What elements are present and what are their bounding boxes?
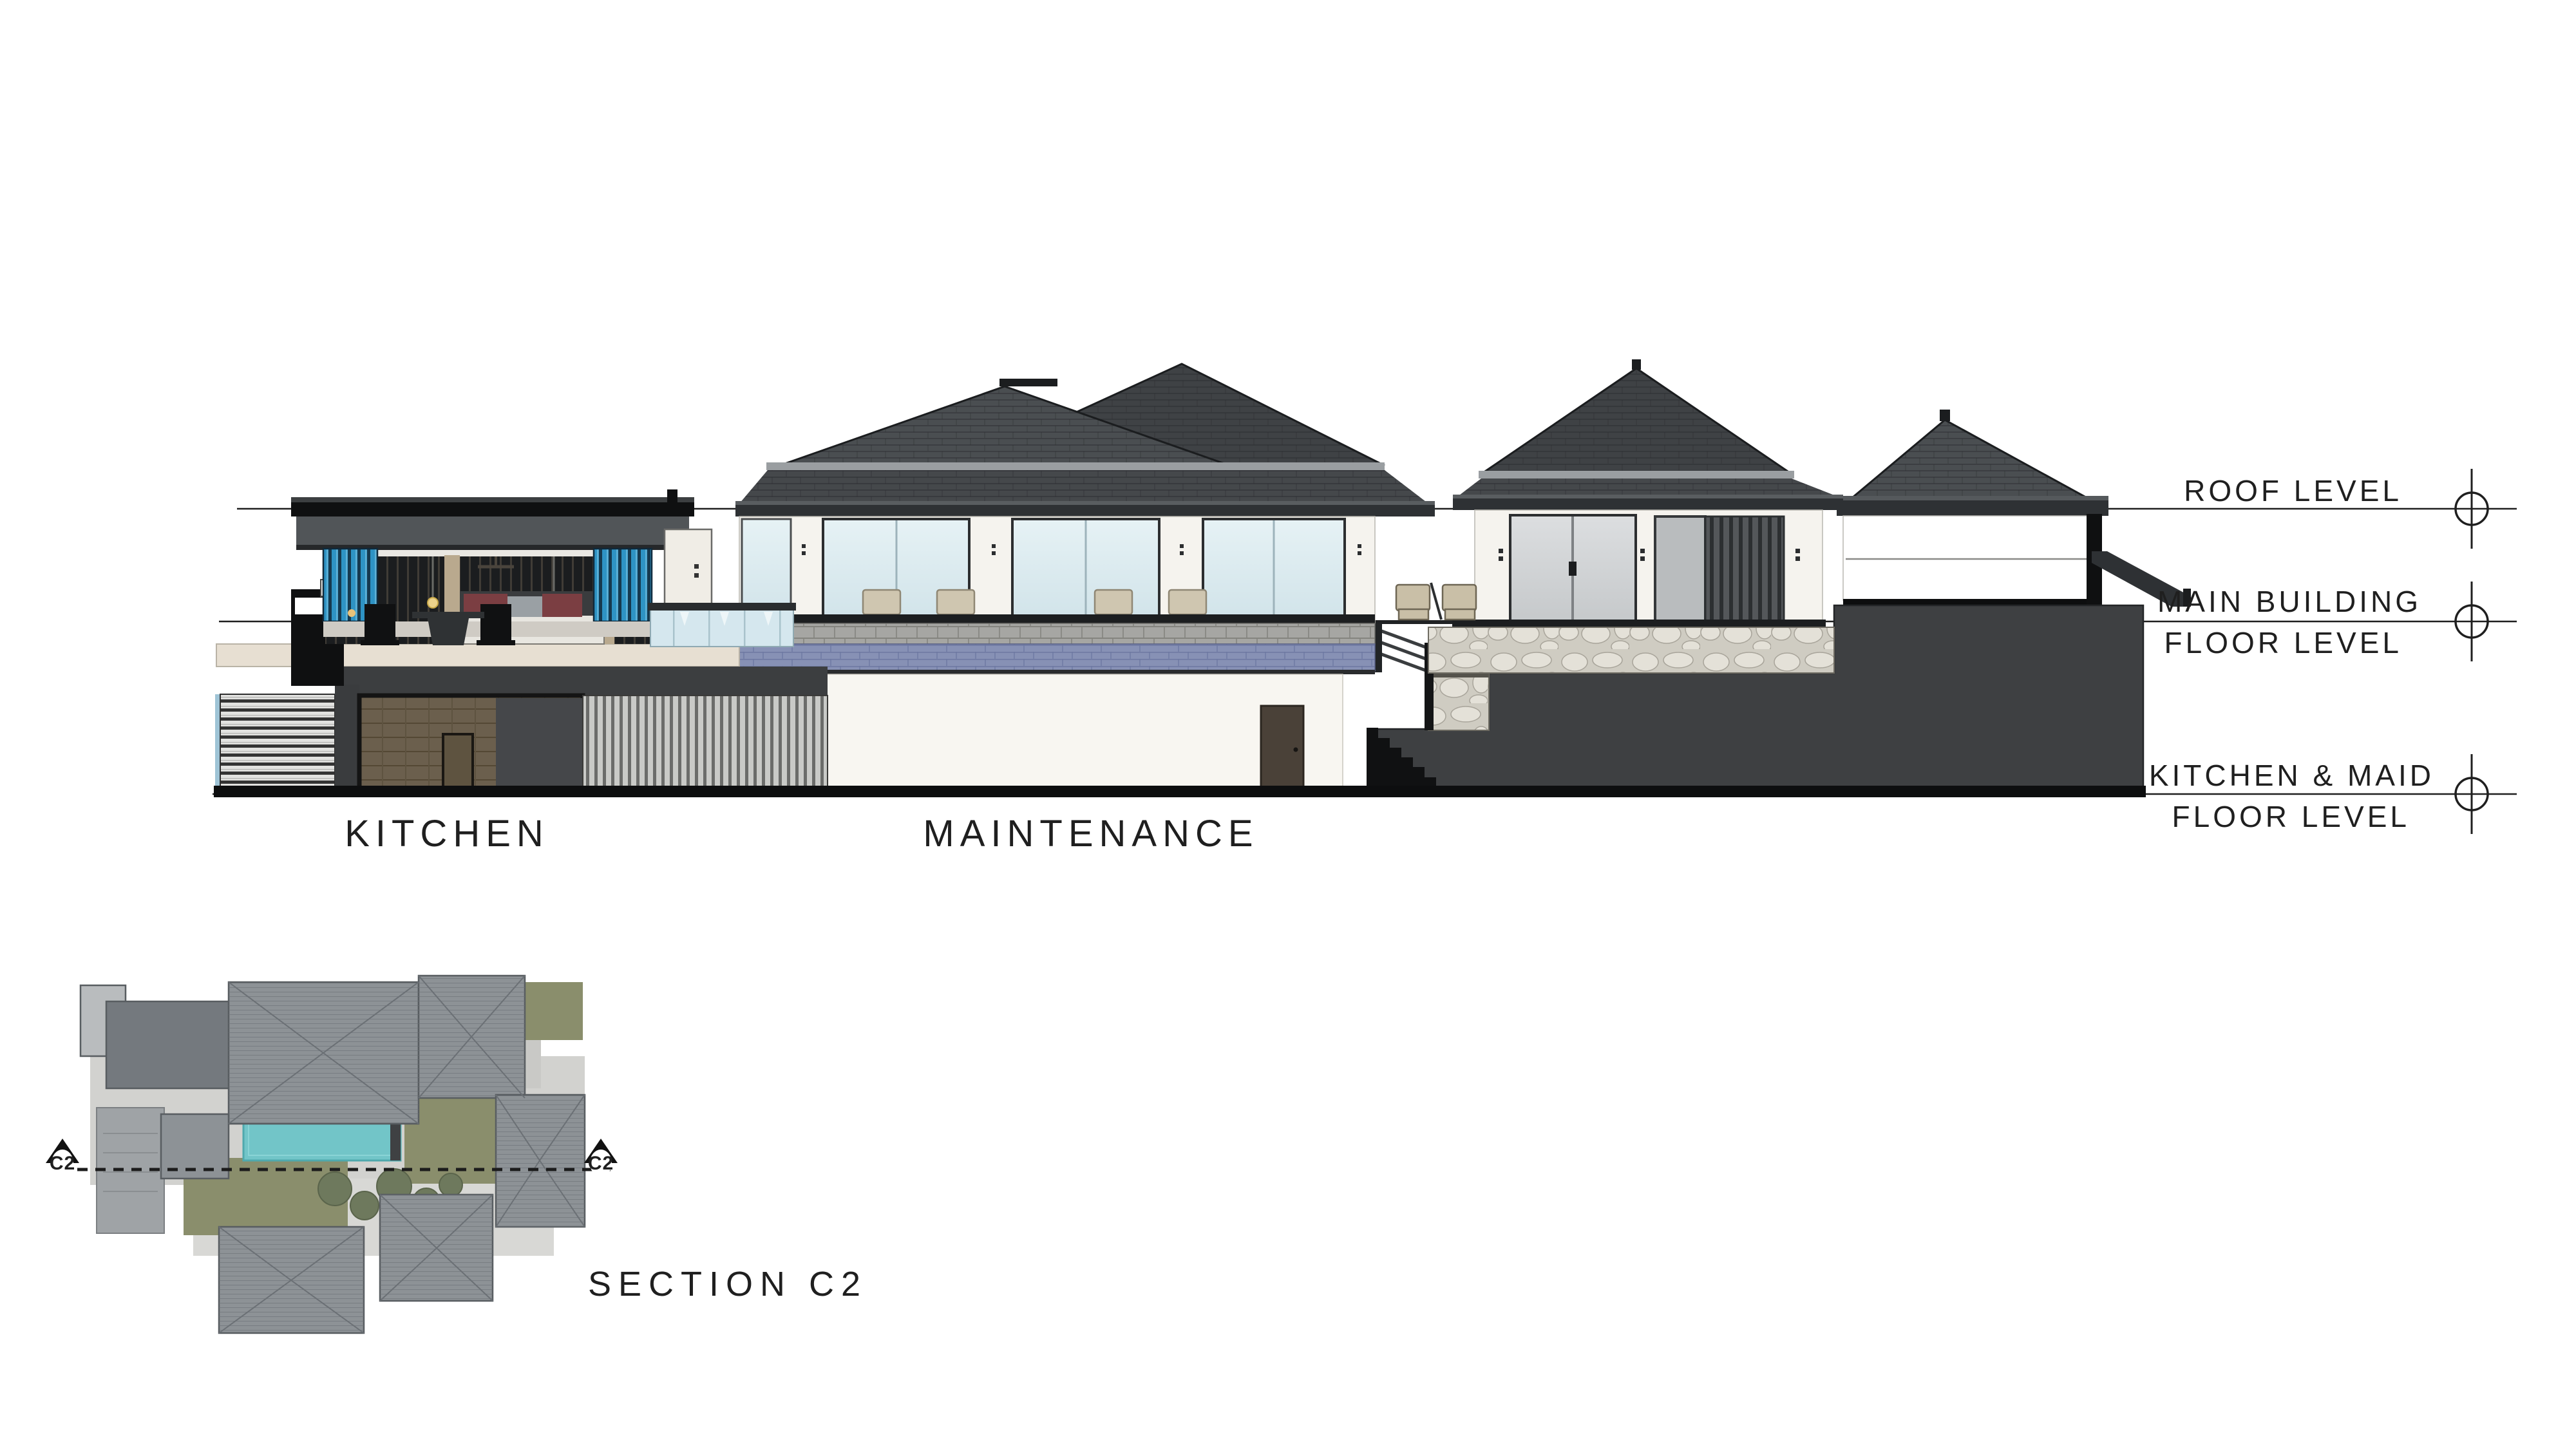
room-labels: KITCHEN MAINTENANCE — [345, 813, 1258, 855]
stair-railing — [1378, 630, 1431, 672]
svg-text:C2: C2 — [588, 1153, 614, 1174]
blue-louver-right — [594, 549, 652, 621]
main-level-label-1: MAIN BUILDING — [2157, 585, 2421, 618]
terrace-balustrade — [648, 603, 796, 647]
kitchen-level-label-1: KITCHEN & MAID — [2149, 759, 2434, 792]
stone-pillar — [1428, 671, 1489, 730]
section-c2-sheet: ROOF LEVEL MAIN BUILDING FLOOR LEVEL KIT… — [0, 0, 2576, 1449]
drawing-canvas: ROOF LEVEL MAIN BUILDING FLOOR LEVEL KIT… — [0, 0, 2576, 1449]
kitchen-level-label-2: FLOOR LEVEL — [2172, 800, 2410, 833]
middle-building — [735, 364, 1435, 789]
maintenance-label: MAINTENANCE — [923, 813, 1258, 855]
section-title: SECTION C2 — [588, 1265, 867, 1303]
louver-fence — [220, 694, 335, 790]
level-labels: ROOF LEVEL MAIN BUILDING FLOOR LEVEL KIT… — [2149, 474, 2434, 833]
ground-base-line — [214, 786, 2146, 797]
site-plan: C2 C2 — [46, 976, 618, 1333]
kitchen-door — [443, 734, 473, 790]
level-markers — [2456, 469, 2488, 834]
stone-base — [1428, 627, 1834, 673]
svg-text:C2: C2 — [50, 1153, 75, 1174]
section-marker-left: C2 — [46, 1139, 79, 1177]
maintenance-door — [1261, 706, 1303, 788]
roof-level-label: ROOF LEVEL — [2184, 474, 2402, 507]
terrace-chairs — [1396, 583, 1476, 620]
section-marker-right: C2 — [584, 1139, 618, 1177]
section-elevation — [214, 359, 2191, 797]
main-level-label-2: FLOOR LEVEL — [2164, 626, 2402, 659]
right-pavilion — [1396, 359, 1843, 673]
glass-doors — [742, 519, 1345, 616]
kitchen-label: KITCHEN — [345, 813, 549, 855]
vertical-louver-screen — [583, 696, 828, 790]
